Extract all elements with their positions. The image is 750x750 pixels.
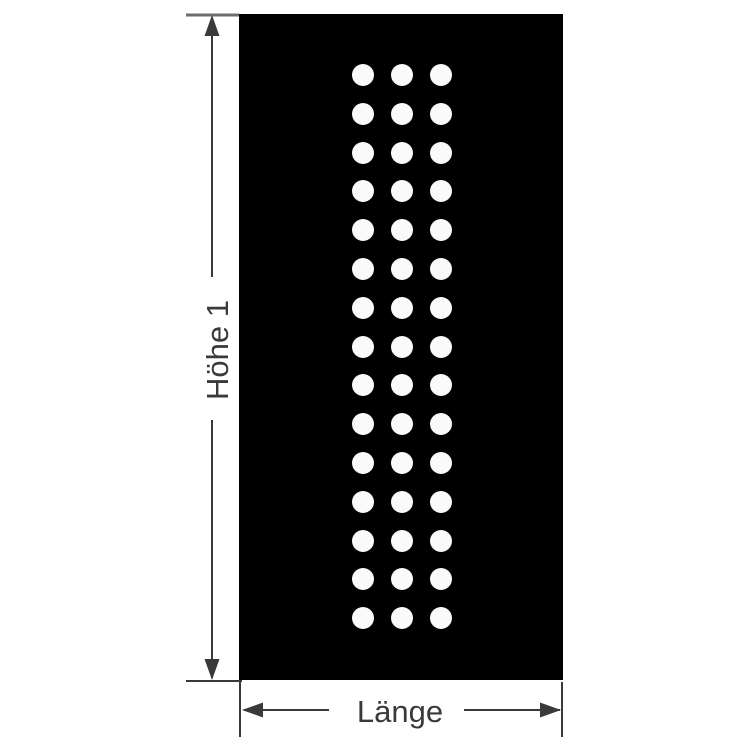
hole [352, 568, 374, 590]
hole [430, 297, 452, 319]
hole [391, 297, 413, 319]
hole [430, 568, 452, 590]
hole [391, 336, 413, 358]
hole [430, 452, 452, 474]
drawing-svg: Höhe 1 Länge [0, 0, 750, 750]
height-label: Höhe 1 [200, 300, 235, 400]
hole [430, 258, 452, 280]
hole [352, 64, 374, 86]
hole [391, 413, 413, 435]
hole [352, 374, 374, 396]
hole [352, 452, 374, 474]
hole [430, 374, 452, 396]
hole [430, 64, 452, 86]
hole [391, 258, 413, 280]
hole [391, 374, 413, 396]
hole [391, 103, 413, 125]
hole [352, 180, 374, 202]
arrow-left-icon [242, 703, 263, 718]
hole [430, 219, 452, 241]
hole [391, 180, 413, 202]
hole [352, 336, 374, 358]
arrow-right-icon [540, 703, 561, 718]
hole [430, 180, 452, 202]
hole [430, 142, 452, 164]
hole [430, 607, 452, 629]
length-label: Länge [357, 694, 443, 729]
height-dimension: Höhe 1 [186, 15, 242, 681]
hole [430, 530, 452, 552]
hole [391, 568, 413, 590]
hole [391, 452, 413, 474]
hole [352, 491, 374, 513]
hole [430, 103, 452, 125]
hole [391, 491, 413, 513]
hole [352, 530, 374, 552]
hole [391, 142, 413, 164]
dimension-drawing: Höhe 1 Länge [0, 0, 750, 750]
hole [352, 413, 374, 435]
hole [352, 297, 374, 319]
hole [352, 258, 374, 280]
arrow-down-icon [205, 659, 220, 680]
hole [391, 607, 413, 629]
hole [352, 607, 374, 629]
hole [391, 219, 413, 241]
hole [430, 336, 452, 358]
hole [352, 103, 374, 125]
length-dimension: Länge [240, 682, 562, 737]
hole [352, 219, 374, 241]
hole [391, 64, 413, 86]
hole-grid [352, 64, 452, 629]
hole [391, 530, 413, 552]
hole [352, 142, 374, 164]
hole [430, 413, 452, 435]
arrow-up-icon [205, 15, 220, 36]
hole [430, 491, 452, 513]
